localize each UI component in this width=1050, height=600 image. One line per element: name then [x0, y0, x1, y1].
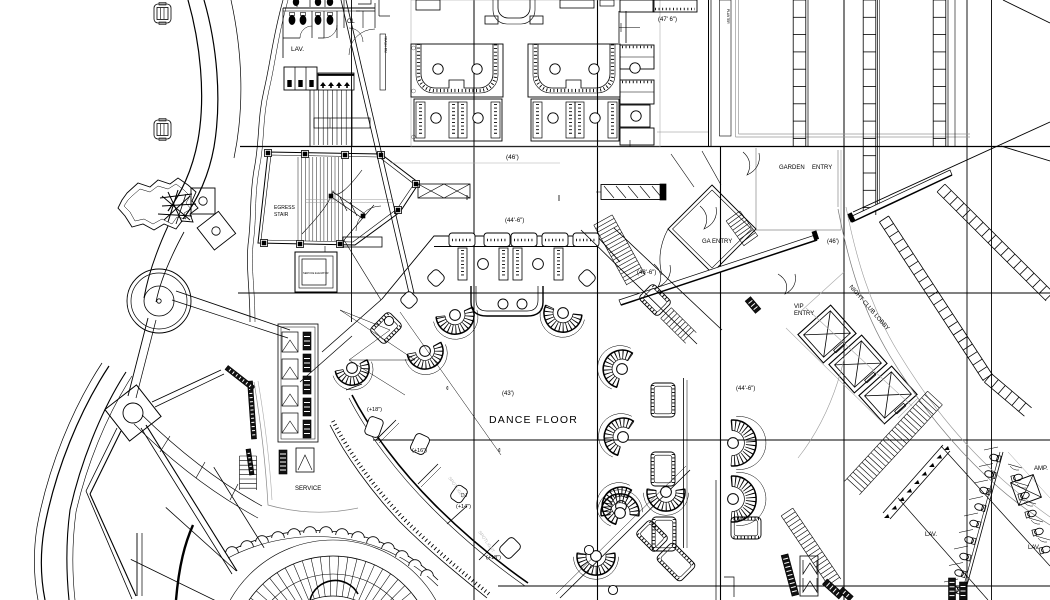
svg-text:ENTRY: ENTRY: [794, 311, 814, 317]
svg-text:GA ENTRY: GA ENTRY: [702, 239, 732, 245]
svg-text:(+18"): (+18"): [486, 555, 501, 561]
svg-text:TRASH RM: TRASH RM: [384, 36, 388, 53]
svg-text:(44'-6"): (44'-6"): [736, 386, 755, 392]
svg-text:ENTRY: ENTRY: [812, 165, 832, 171]
svg-text:(+18"): (+18"): [367, 407, 382, 413]
svg-text:PLANTER: PLANTER: [726, 9, 730, 24]
svg-text:DANCE FLOOR: DANCE FLOOR: [489, 414, 578, 426]
svg-text:(46'): (46'): [827, 239, 839, 245]
svg-text:(44'-6"): (44'-6"): [505, 218, 524, 224]
svg-text:SERVICE ELEVATOR: SERVICE ELEVATOR: [303, 271, 329, 275]
svg-text:VIP: VIP: [794, 304, 804, 310]
svg-text:GARDEN: GARDEN: [779, 165, 805, 171]
svg-text:EGRESS: EGRESS: [274, 205, 296, 211]
svg-text:¢: ¢: [498, 448, 501, 454]
svg-text:(46'): (46'): [506, 154, 519, 161]
svg-text:LAV.: LAV.: [925, 532, 937, 538]
svg-text:(47' 6"): (47' 6"): [658, 17, 677, 23]
svg-text:(43'): (43'): [502, 391, 514, 397]
svg-text:¢: ¢: [446, 386, 449, 392]
svg-text:SERVICE: SERVICE: [295, 486, 321, 492]
svg-text:STAIR: STAIR: [274, 212, 289, 218]
svg-text:LAV.: LAV.: [291, 46, 304, 53]
svg-text:AMP.: AMP.: [1034, 466, 1048, 472]
svg-text:LAV.: LAV.: [1028, 545, 1040, 551]
svg-text:(+16"): (+16"): [412, 448, 427, 454]
